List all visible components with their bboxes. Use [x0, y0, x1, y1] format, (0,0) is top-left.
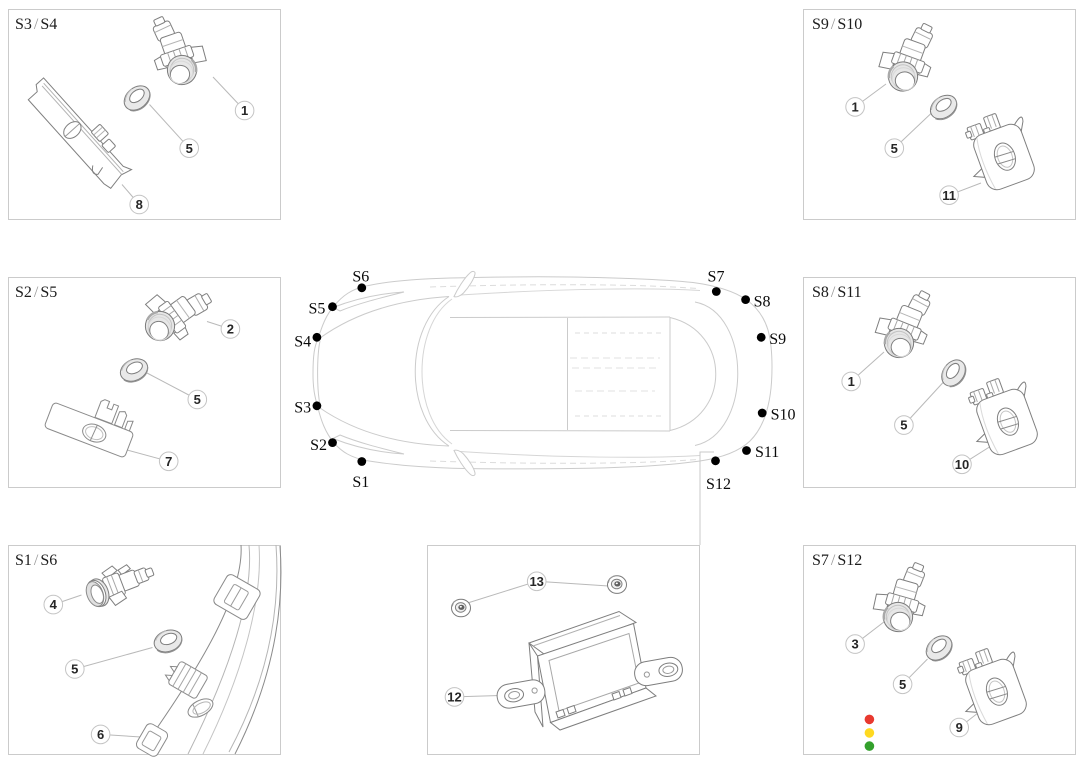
svg-text:S1: S1: [352, 474, 369, 491]
svg-text:S4: S4: [294, 334, 311, 351]
svg-text:1: 1: [848, 374, 855, 389]
svg-text:6: 6: [97, 727, 104, 742]
svg-text:5: 5: [900, 418, 907, 433]
svg-text:S5: S5: [308, 301, 325, 318]
svg-text:S2/S5: S2/S5: [15, 284, 57, 301]
svg-text:S9/S10: S9/S10: [812, 16, 862, 33]
svg-text:5: 5: [186, 141, 193, 156]
svg-text:12: 12: [447, 690, 461, 705]
svg-text:1: 1: [851, 100, 858, 115]
svg-text:5: 5: [194, 392, 201, 407]
svg-text:S8/S11: S8/S11: [812, 284, 862, 301]
svg-text:S6: S6: [352, 269, 369, 286]
svg-text:7: 7: [165, 454, 172, 469]
svg-text:S7: S7: [708, 269, 725, 286]
svg-text:3: 3: [851, 637, 858, 652]
svg-text:S7/S12: S7/S12: [812, 552, 862, 569]
svg-text:8: 8: [136, 197, 143, 212]
svg-text:4: 4: [50, 597, 58, 612]
svg-text:2: 2: [227, 322, 234, 337]
svg-text:S12: S12: [706, 476, 731, 493]
svg-text:5: 5: [71, 662, 78, 677]
svg-text:S3: S3: [294, 400, 311, 417]
svg-text:S11: S11: [755, 444, 779, 461]
svg-text:13: 13: [529, 574, 543, 589]
svg-text:S10: S10: [771, 407, 796, 424]
svg-text:5: 5: [891, 141, 898, 156]
svg-text:S3/S4: S3/S4: [15, 16, 57, 33]
svg-text:S9: S9: [769, 331, 786, 348]
svg-text:9: 9: [956, 720, 963, 735]
svg-text:S8: S8: [754, 294, 771, 311]
svg-text:10: 10: [955, 457, 969, 472]
svg-text:1: 1: [241, 103, 248, 118]
svg-text:S1/S6: S1/S6: [15, 552, 57, 569]
svg-text:5: 5: [899, 677, 906, 692]
svg-text:11: 11: [942, 188, 956, 203]
svg-text:S2: S2: [310, 437, 327, 454]
